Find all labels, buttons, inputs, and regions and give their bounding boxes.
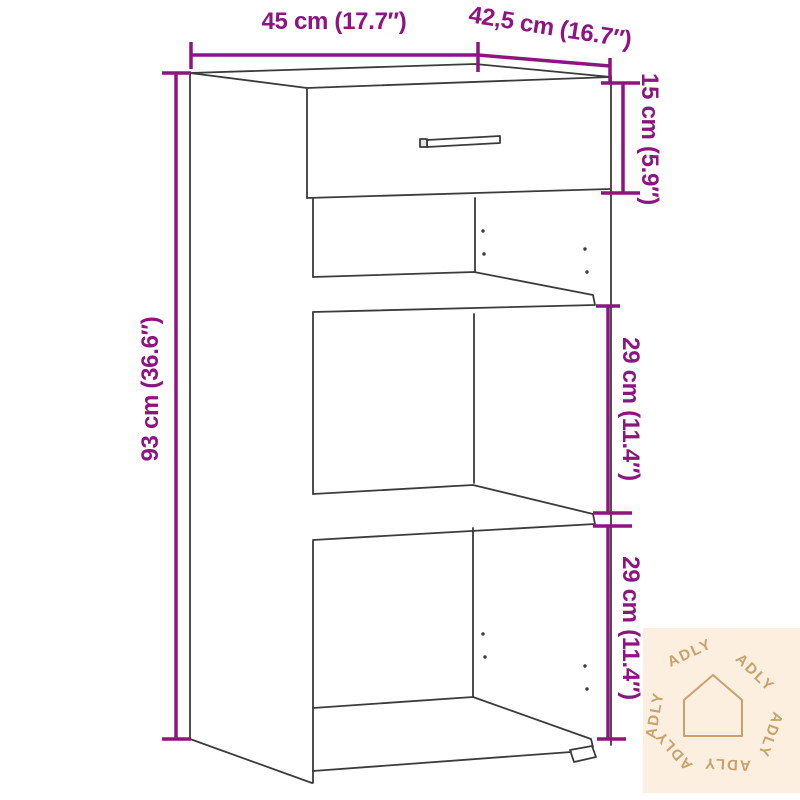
overall-height-dimension-label: 93 cm (36.6″) <box>139 316 163 461</box>
shelf-upper <box>313 272 595 312</box>
bottom-panel <box>313 697 593 747</box>
lower-compartment-dimension-label: 29 cm (11.4″) <box>618 556 642 700</box>
cabinet-outline <box>190 64 611 783</box>
cabinet-left-bottom-edge <box>190 739 312 783</box>
shelf-pin-holes <box>481 229 588 690</box>
width-dimension-line <box>191 42 478 72</box>
drawer-height-dimension-label: 15 cm (5.9″) <box>637 73 661 205</box>
upper-compartment-dimension-label: 29 cm (11.4″) <box>618 337 642 481</box>
shelf-lower <box>313 485 595 540</box>
cabinet-front-right-foot <box>570 746 596 762</box>
drawer-handle-icon <box>420 136 500 147</box>
watermark-badge: ADLY ADLY ADLY ADLY ADLY ADLY <box>643 628 800 793</box>
cabinet-top-face <box>190 64 611 88</box>
width-dimension-label: 45 cm (17.7″) <box>261 10 406 34</box>
drawer <box>307 88 610 198</box>
dimension-diagram: 45 cm (17.7″) 42,5 cm (16.7″) 15 cm (5.9… <box>0 0 800 800</box>
shelves <box>313 272 595 747</box>
dimension-lines <box>162 42 640 739</box>
drawer-bottom-edge <box>307 189 610 198</box>
height-dimension-line <box>162 73 191 739</box>
watermark-brand-text: ADLY <box>703 755 751 772</box>
drawer-height-dimension-line <box>601 83 640 193</box>
cabinet-bottom-front-edge <box>313 752 571 771</box>
